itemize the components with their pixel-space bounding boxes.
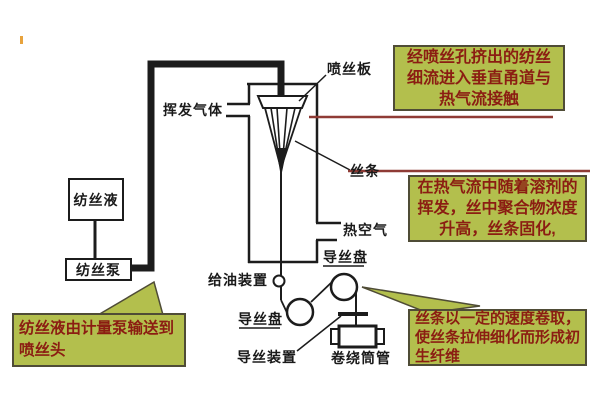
callout-line: 挥发，丝中聚合物浓度 — [410, 198, 585, 219]
callout-line: 丝条以一定的速度卷取， — [415, 309, 585, 328]
bobbin-body — [339, 326, 376, 347]
callout-line: 升高，丝条固化, — [410, 219, 585, 240]
oiling-device-roller — [274, 276, 285, 287]
volatile-gas-label: 挥发气体 — [163, 103, 223, 118]
callout-line: 纺丝液由计量泵输送到 — [19, 318, 184, 340]
filament-leader-line — [295, 141, 350, 170]
feed-pipe — [132, 64, 281, 268]
callout-winding-note: 丝条以一定的速度卷取， 使丝条拉伸细化而形成初 生纤维 — [408, 309, 587, 366]
yellow-dash-icon — [20, 36, 23, 44]
lower-godet-wheel — [287, 299, 313, 325]
spinneret-plate-shape — [258, 96, 307, 108]
hot-air-label: 热空气 — [343, 223, 388, 238]
callout-line: 在热气流中随着溶剂的 — [410, 177, 585, 198]
filament-label: 丝条 — [350, 164, 380, 179]
callout-extrusion-note: 经喷丝孔挤出的纺丝 细流进入垂直甬道与 热气流接触 — [393, 45, 565, 111]
spinneret-plate-label: 喷丝板 — [327, 62, 372, 77]
upper-godet-wheel — [331, 274, 357, 300]
spinning-solution-box: 纺丝液 — [68, 178, 124, 221]
spinning-pump-box: 纺丝泵 — [65, 258, 132, 281]
oiling-device-label: 给油装置 — [208, 273, 268, 288]
callout-line: 喷丝头 — [19, 340, 184, 362]
callout-solidification-note: 在热气流中随着溶剂的 挥发，丝中聚合物浓度 升高，丝条固化, — [408, 175, 587, 242]
guide-device-label: 导丝装置 — [237, 350, 297, 365]
callout-line: 经喷丝孔挤出的纺丝 — [395, 47, 563, 68]
spinneret-plate-leader-line — [299, 75, 326, 101]
callout-line: 使丝条拉伸细化而形成初 — [415, 328, 585, 347]
callout-line: 生纤维 — [415, 347, 585, 366]
thread-between-godets — [311, 281, 333, 302]
callout-line: 热气流接触 — [395, 89, 563, 110]
godet-lower-label: 导丝盘 — [238, 312, 283, 327]
dry-spinning-process-diagram: 纺丝液 纺丝泵 挥发气体 喷丝板 丝条 热空气 导丝盘 给油装置 导丝盘 导丝装… — [0, 0, 600, 403]
callout-bottom-left-wedge — [98, 282, 163, 315]
winding-bobbin-label: 卷绕筒管 — [331, 351, 391, 366]
spinning-pump-label: 纺丝泵 — [76, 260, 121, 280]
callout-line: 细流进入垂直甬道与 — [395, 68, 563, 89]
spinning-solution-label: 纺丝液 — [74, 190, 119, 210]
callout-metering-note: 纺丝液由计量泵输送到 喷丝头 — [12, 313, 186, 367]
godet-upper-label: 导丝盘 — [323, 250, 368, 265]
